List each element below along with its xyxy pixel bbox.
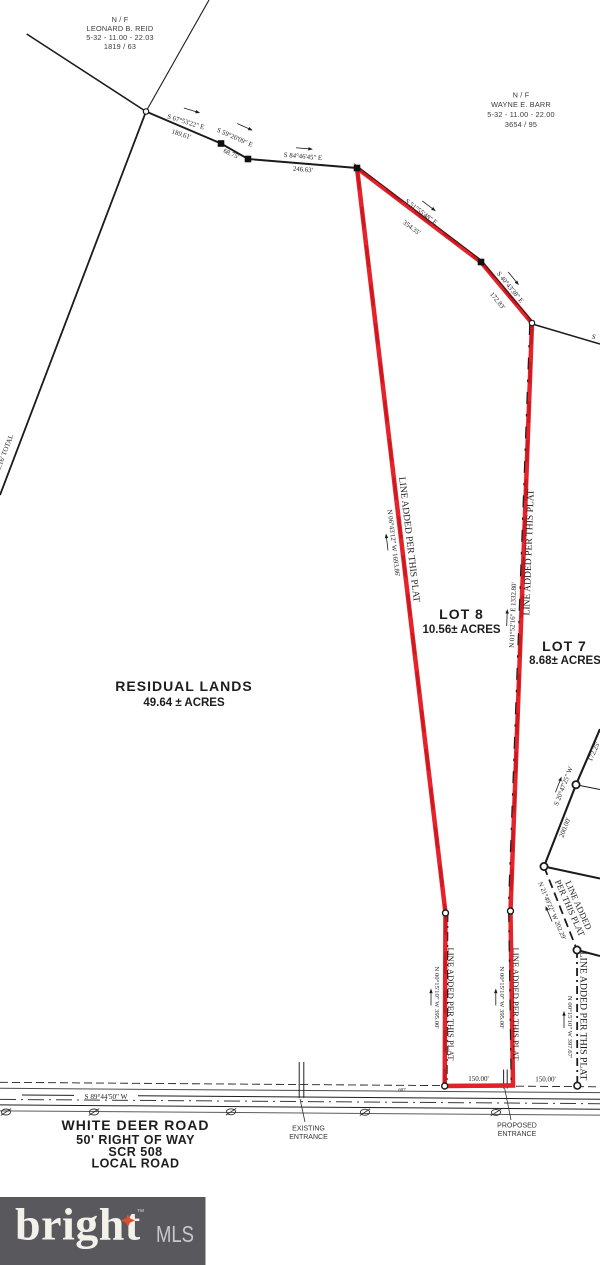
- svg-text:LOT 7: LOT 7: [542, 638, 587, 654]
- svg-text:WAYNE E. BARR: WAYNE E. BARR: [491, 100, 551, 109]
- svg-text:1819 / 63: 1819 / 63: [104, 42, 136, 51]
- svg-text:68.75': 68.75': [222, 148, 240, 161]
- svg-text:LINE ADDED PER THIS PLAT: LINE ADDED PER THIS PLAT: [578, 952, 589, 1081]
- svg-text:S 20°47'25" W: S 20°47'25" W: [553, 765, 575, 806]
- svg-text:EXISTING: EXISTING: [292, 1126, 325, 1133]
- svg-text:607: 607: [398, 1089, 406, 1094]
- svg-text:172.25': 172.25': [586, 741, 600, 763]
- svg-text:8.68± ACRES: 8.68± ACRES: [529, 655, 600, 667]
- svg-text:LOT 8: LOT 8: [439, 606, 484, 622]
- svg-text:N / F: N / F: [112, 15, 129, 24]
- svg-text:172.83': 172.83': [488, 291, 506, 311]
- svg-text:LEONARD B. REID: LEONARD B. REID: [87, 24, 154, 33]
- svg-text:N 00°15'10" W 395.00': N 00°15'10" W 395.00': [498, 966, 505, 1028]
- svg-text:N 00°15'10" W 397.67': N 00°15'10" W 397.67': [566, 996, 573, 1058]
- svg-text:N 01°52'16" E 1332.80': N 01°52'16" E 1332.80': [509, 582, 518, 648]
- svg-text:200.00': 200.00': [557, 817, 572, 839]
- svg-text:S 84°46'45" E: S 84°46'45" E: [283, 152, 322, 162]
- svg-text:LOCAL ROAD: LOCAL ROAD: [91, 1157, 179, 1171]
- svg-text:246.63': 246.63': [293, 166, 313, 175]
- svg-text:5-32 - 11.00 - 22.00: 5-32 - 11.00 - 22.00: [487, 110, 555, 119]
- svg-text:MLS: MLS: [156, 1221, 194, 1247]
- svg-text:N / F: N / F: [513, 91, 530, 100]
- svg-text:WHITE DEER ROAD: WHITE DEER ROAD: [62, 1117, 210, 1133]
- svg-text:354.35': 354.35': [401, 219, 421, 237]
- svg-text:ENTRANCE: ENTRANCE: [289, 1134, 328, 1141]
- svg-text:LINE ADDED PER THIS PLAT: LINE ADDED PER THIS PLAT: [446, 948, 456, 1062]
- svg-text:150.00': 150.00': [535, 1076, 556, 1084]
- svg-text:5-32 - 11.00 - 22.03: 5-32 - 11.00 - 22.03: [86, 33, 154, 42]
- svg-text:150.00': 150.00': [468, 1075, 489, 1083]
- svg-text:PROPOSED: PROPOSED: [497, 1123, 537, 1130]
- svg-text:bright: bright: [15, 1199, 141, 1250]
- svg-text:ENTRANCE: ENTRANCE: [498, 1131, 537, 1138]
- svg-text:™: ™: [137, 1208, 145, 1217]
- svg-text:10.56± ACRES: 10.56± ACRES: [422, 624, 500, 636]
- svg-text:N 00°15'10" W 395.00': N 00°15'10" W 395.00': [433, 966, 440, 1028]
- svg-text:LINE ADDED PER THIS PLAT: LINE ADDED PER THIS PLAT: [511, 948, 521, 1062]
- svg-text:3654 / 95: 3654 / 95: [505, 120, 537, 129]
- svg-text:RESIDUAL LANDS: RESIDUAL LANDS: [115, 678, 252, 694]
- svg-text:S: S: [591, 333, 597, 342]
- svg-text:49.64 ± ACRES: 49.64 ± ACRES: [143, 697, 225, 709]
